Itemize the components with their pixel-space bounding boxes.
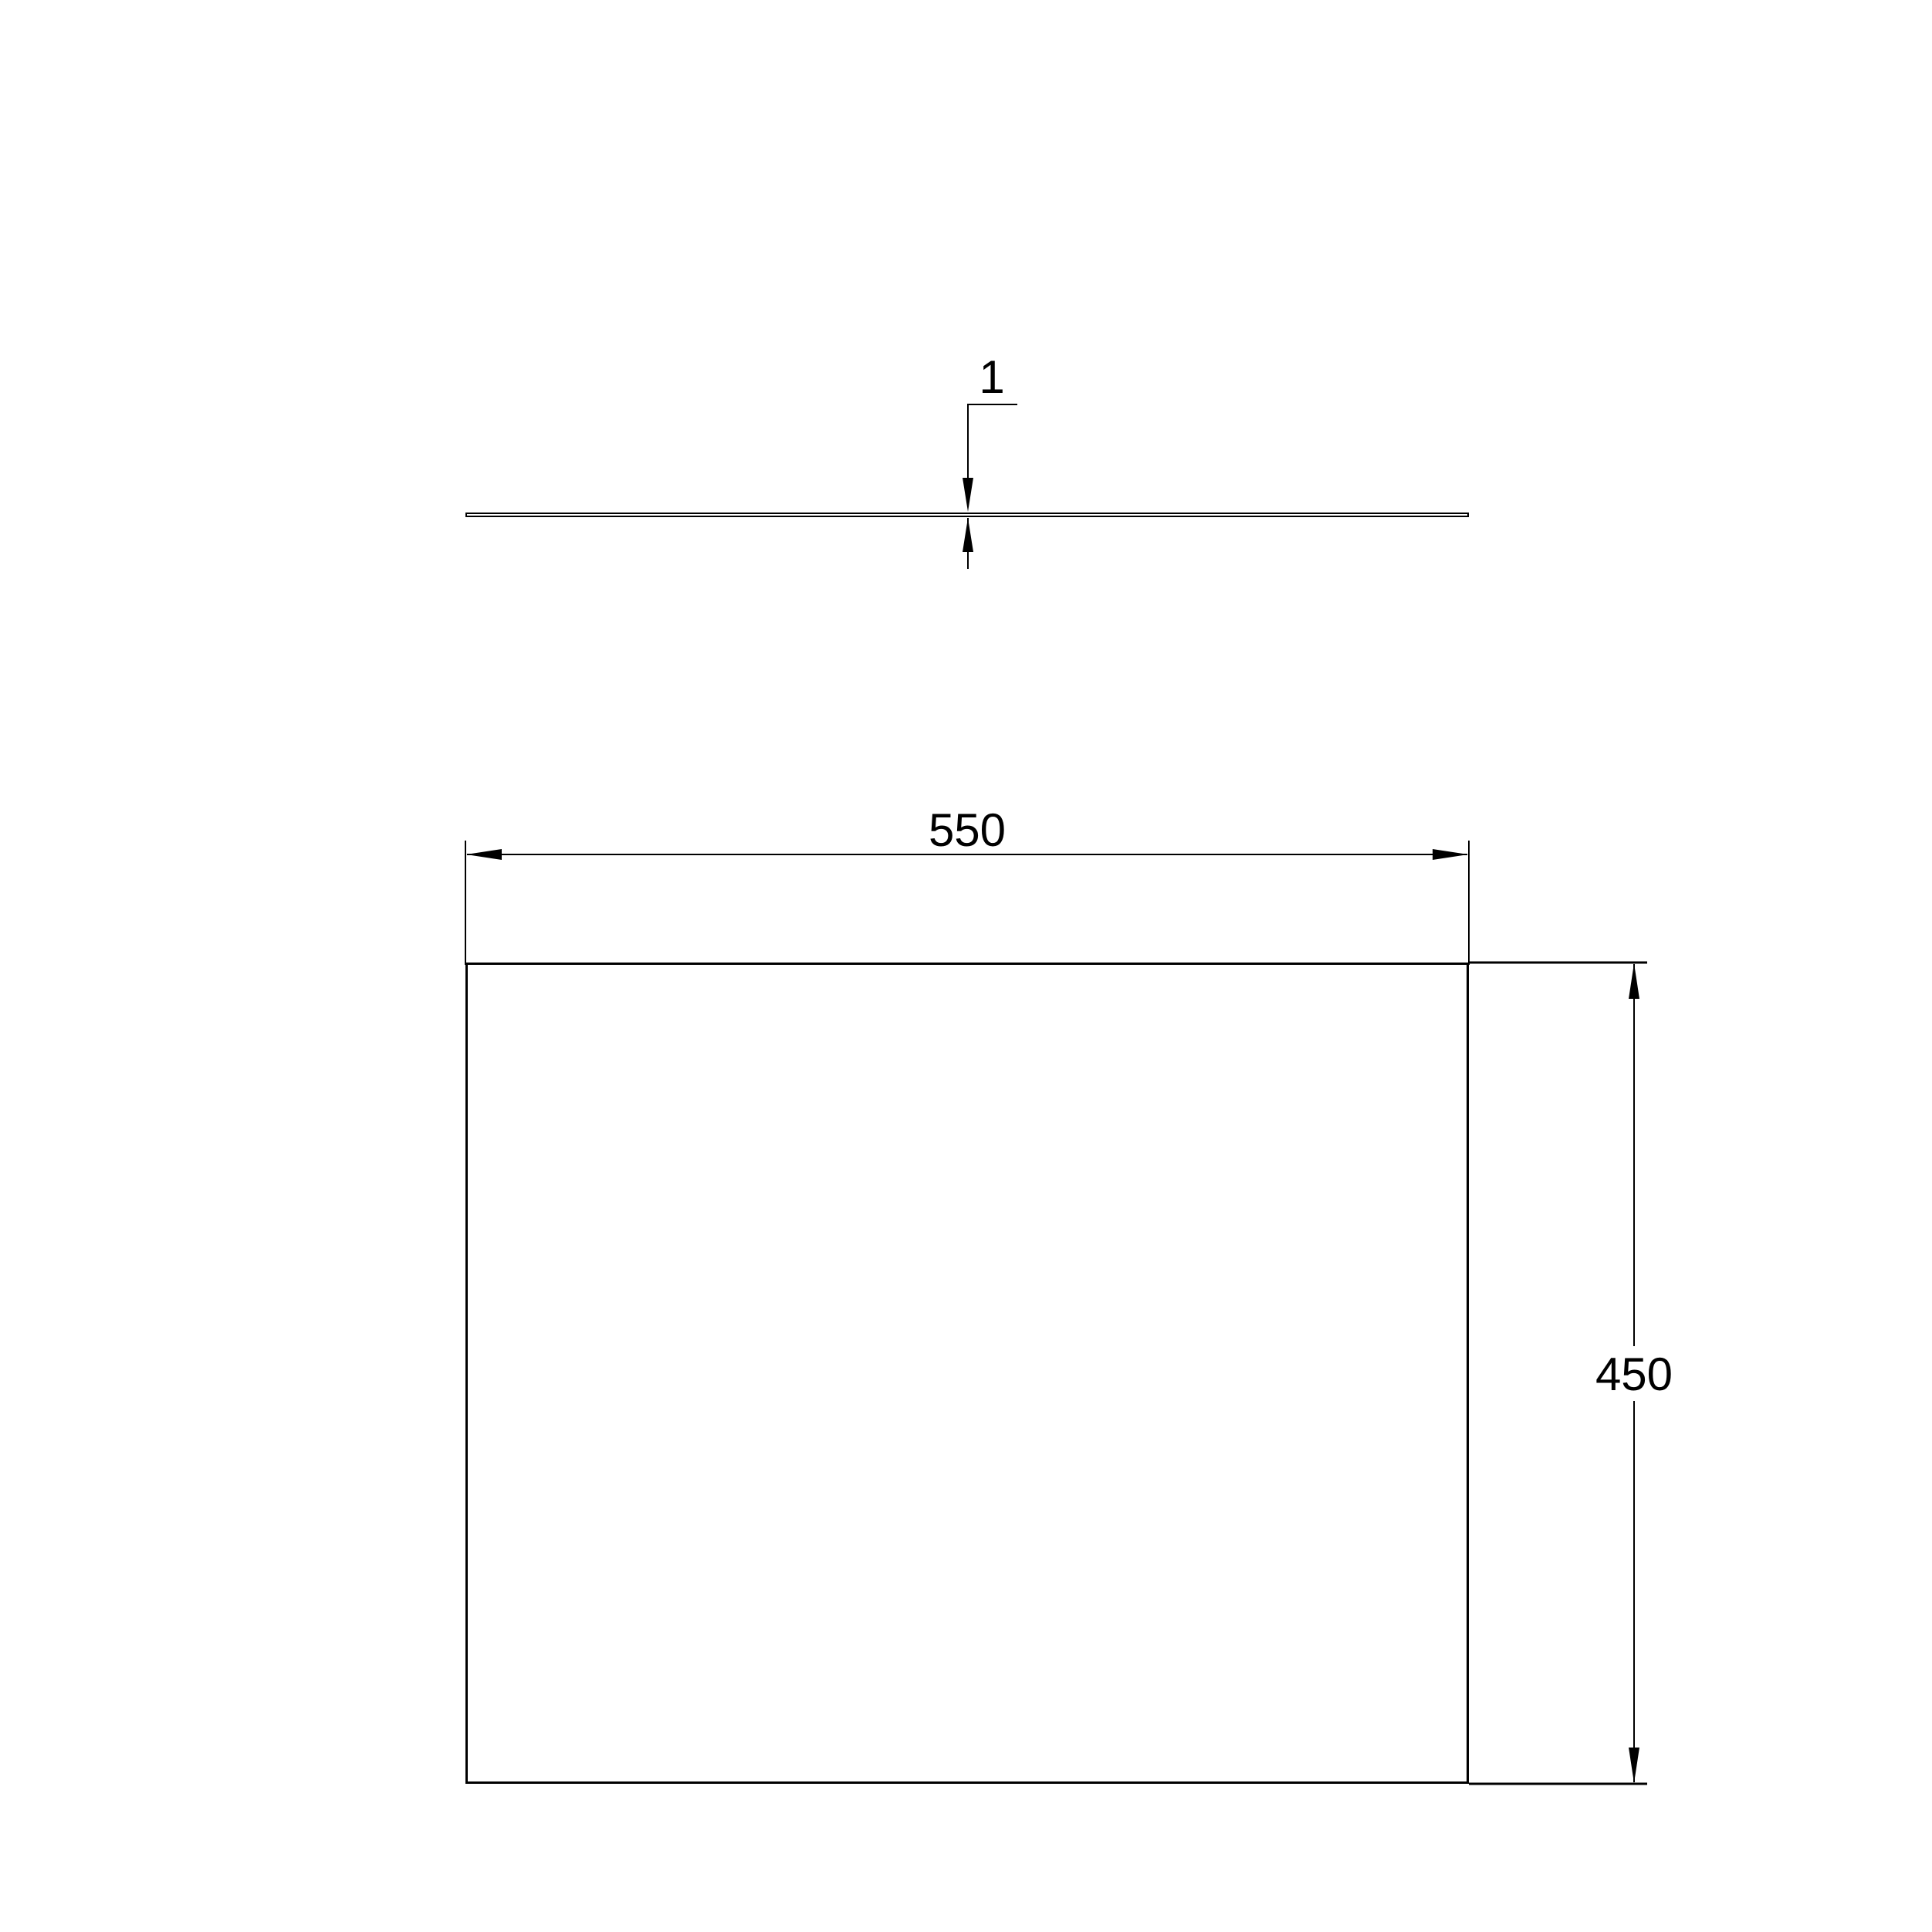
height-arrow-down-icon — [1629, 1748, 1639, 1783]
drawing-canvas: 1 550 450 — [0, 0, 1932, 1932]
height-arrow-up-icon — [1629, 963, 1639, 999]
panel-outline — [467, 964, 1468, 1783]
width-arrow-right-icon — [1433, 849, 1468, 860]
drawing-sheet: 1 550 450 — [0, 0, 1932, 1932]
width-dimension-label: 550 — [929, 804, 1006, 856]
height-dimension-label: 450 — [1595, 1348, 1673, 1400]
plate-edge-profile — [466, 513, 1468, 516]
side-view — [466, 513, 1468, 516]
thickness-arrow-down-icon — [963, 478, 973, 512]
front-view — [467, 964, 1468, 1783]
thickness-dimension-label: 1 — [979, 351, 1004, 403]
height-dimension: 450 — [1469, 963, 1673, 1784]
thickness-leader-line — [968, 404, 1017, 499]
width-arrow-left-icon — [466, 849, 502, 860]
thickness-dimension: 1 — [963, 351, 1017, 569]
width-dimension: 550 — [465, 804, 1469, 965]
